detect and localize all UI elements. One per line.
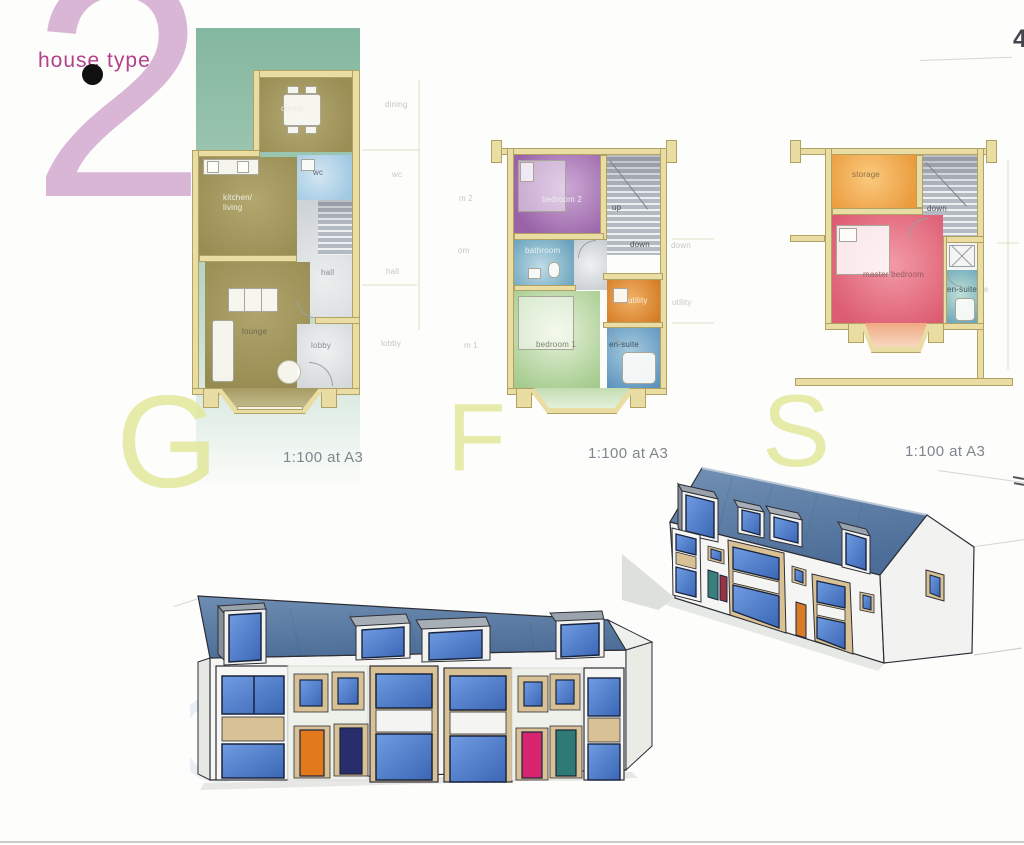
wall [192,150,260,157]
ghost-label: m 2 [459,194,473,203]
wall [253,70,260,154]
dining-chair-icon [305,126,317,134]
ghost-label: om [458,246,470,255]
wall [315,317,360,324]
ghost-line [1007,160,1009,370]
room-label-lobby: lobby [311,341,331,351]
appliance-icon [207,161,219,173]
ghost-label: dining [385,100,408,109]
room-label-master: master bedroom [863,270,924,280]
ghost-label: hall [386,267,399,276]
window [676,567,696,597]
lounge-window-icon [228,288,278,312]
corner-mark: 4 [1013,24,1024,54]
door-orange [300,730,324,776]
scan-edge [0,841,1024,843]
window [588,678,620,716]
left-end-wall [198,658,210,780]
wall [792,148,997,155]
second-floor-plan: storage down master bedroom en-suite [790,140,1018,400]
small-window [338,678,358,704]
door-pink [522,732,542,778]
wall [603,273,663,280]
wall [600,155,607,240]
shower-icon [949,245,975,267]
wall [507,148,514,393]
room-label-dining: dining [281,104,304,114]
ghost-line [362,284,417,286]
bay-buttress [321,388,337,408]
door-teal [556,730,576,776]
door-maroon [720,575,727,602]
wall [199,255,297,262]
dining-chair-icon [305,86,317,94]
window [222,744,284,778]
room-label-kitchen-living: kitchen/ living [223,193,252,212]
wall-cap [666,140,677,163]
wall [660,148,667,393]
wall [514,285,576,291]
bay-sill [237,406,303,410]
wall [943,236,947,327]
ghost-line [362,149,420,151]
pillow-icon [520,162,534,182]
small-window [524,682,542,706]
wall [832,208,923,215]
ghost-line [418,80,420,330]
panel-buff [588,718,620,742]
ghost-line [672,238,714,240]
party-wall [795,378,1013,386]
ghost-label: e [984,285,989,294]
bay-buttress [516,388,532,408]
window [450,736,506,782]
first-floor-plan: bedroom 2 up down bathroom utility bedro… [490,140,690,440]
bathtub-icon [955,298,975,321]
room-label-down-second: down [927,204,947,214]
wall [335,388,360,395]
panel-white [376,710,432,732]
wall [825,148,832,330]
architect-sheet: 2 house type 4 G F S 1:100 at A3 1:100 a… [0,0,1024,845]
room-label-hall: hall [321,268,334,278]
window-mullion [261,289,262,311]
room-label-down: down [630,240,650,250]
washer-icon [613,288,628,303]
wall [514,233,604,240]
gable-window [930,575,940,597]
dormer-window [362,627,404,658]
window [376,674,432,708]
rear-elevation-render [622,450,1022,690]
room-label-bedroom2: bedroom 2 [542,195,582,205]
window [376,734,432,780]
tower-window [561,623,599,657]
ghost-label: wc [392,170,402,179]
wall [790,235,825,242]
dining-chair-icon [287,126,299,134]
room-label-storage: storage [852,170,880,180]
bay-buttress [203,388,219,408]
wall [495,148,673,155]
window-mullion [244,289,245,311]
room-label-ensuite-first: en-suite [609,340,639,350]
ground-floor-plan: dining kitchen/ living wc hall lounge lo… [175,62,380,434]
ground-stairs [318,200,352,255]
scale-note-ground: 1:100 at A3 [283,449,363,466]
room-label-bathroom: bathroom [525,246,560,256]
small-window [300,680,322,706]
tower-window [686,495,714,538]
bay-window-inner [865,323,927,347]
door-teal [708,570,718,600]
small-window [863,595,871,610]
bay-window-inner [221,388,319,408]
dormer-window [429,630,482,660]
dining-chair-icon [287,86,299,94]
wall [352,70,360,395]
ghost-label: down [671,241,691,250]
ghost-label: m 1 [464,341,478,350]
tower-window [846,533,866,570]
window [222,676,284,714]
room-label-up: up [612,203,621,213]
room-storage [832,155,916,208]
wall [192,150,199,395]
wall [977,148,984,383]
window [588,744,620,780]
door-navy [340,728,362,774]
sketch-line [920,57,1012,61]
room-label-ensuite-second: en-suite [947,285,977,295]
room-label-wc: wc [313,168,323,178]
sofa-icon [212,320,234,382]
tower-side [678,484,682,534]
bullet-dot-icon [82,64,103,85]
room-label-lounge: lounge [242,327,267,337]
wall [253,70,360,78]
ground-line [974,648,1022,655]
ghost-line [672,322,714,324]
wall [940,323,984,330]
room-label-bedroom1: bedroom 1 [536,340,576,350]
bay-window-inner [534,388,630,408]
ghost-label: utility [672,298,692,307]
wall [916,155,923,208]
tower-window [229,613,261,662]
wall-cap [790,140,801,163]
panel-white [450,712,506,734]
wall-cap [986,140,997,163]
ghost-label: lobby [381,339,401,348]
basin-icon [528,268,541,279]
appliance-icon [237,161,249,173]
round-table-icon [277,360,301,384]
bathtub-icon [622,352,656,384]
front-elevation-render [190,580,664,795]
wall-cap [491,140,502,163]
pillow-icon [839,228,857,242]
panel-buff [222,717,284,741]
dormer-window [742,510,760,535]
door-orange [796,602,806,638]
small-window [795,569,803,583]
toilet-icon [548,262,560,278]
window [450,676,506,710]
tower-side [218,606,224,660]
room-label-utility: utility [628,296,648,306]
wall [943,236,984,243]
small-window [556,680,574,704]
right-side-wall [626,642,652,770]
